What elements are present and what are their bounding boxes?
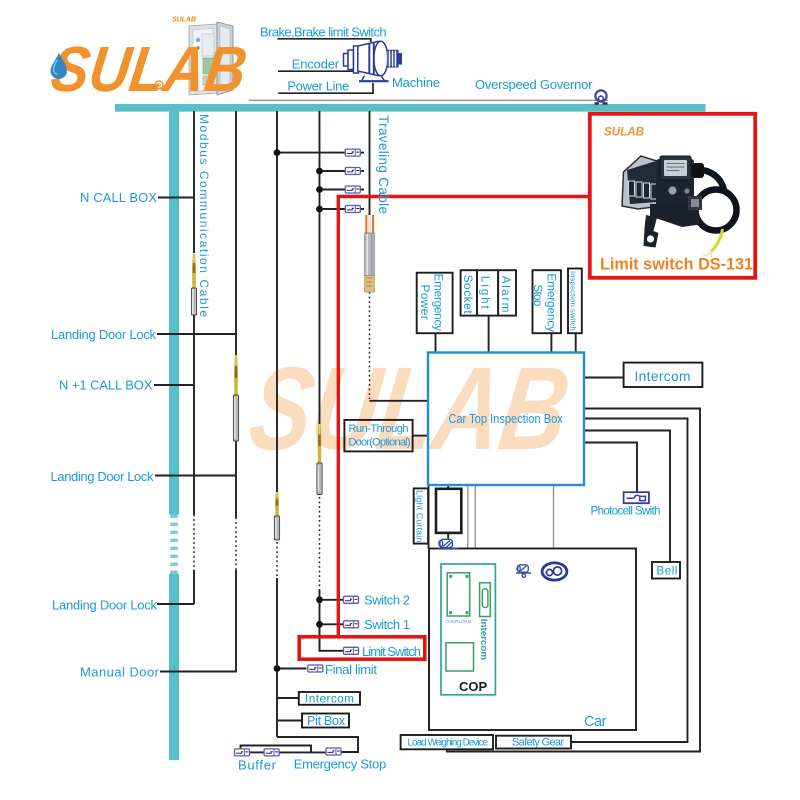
svg-text:Switch 1: Switch 1 xyxy=(364,617,410,632)
svg-text:Modbus Communication Cable: Modbus Communication Cable xyxy=(197,114,211,317)
svg-text:Buffer: Buffer xyxy=(238,758,277,773)
svg-text:Overspeed Governor: Overspeed Governor xyxy=(475,77,593,92)
svg-text:Intercom: Intercom xyxy=(478,619,489,660)
svg-text:Socket: Socket xyxy=(461,275,475,315)
svg-text:Pit Box: Pit Box xyxy=(307,714,346,728)
svg-text:Switch 2: Switch 2 xyxy=(364,593,410,608)
svg-text:Power: Power xyxy=(418,285,432,320)
svg-text:Intercom: Intercom xyxy=(635,369,691,384)
svg-text:Intercom: Intercom xyxy=(305,692,354,706)
svg-text:Alarm: Alarm xyxy=(499,276,513,313)
svg-text:Landing Door Lock: Landing Door Lock xyxy=(52,598,158,613)
svg-text:Limit switch DS-131: Limit switch DS-131 xyxy=(600,255,753,274)
svg-text:SULAB: SULAB xyxy=(604,125,644,139)
svg-text:Bell: Bell xyxy=(657,565,678,578)
svg-text:Machine: Machine xyxy=(392,75,440,90)
svg-text:Run-Through: Run-Through xyxy=(349,423,409,435)
svg-text:Emergency: Emergency xyxy=(545,273,559,332)
svg-text:Limit Switch: Limit Switch xyxy=(362,644,421,659)
svg-text:Landing Door Lock: Landing Door Lock xyxy=(51,469,155,484)
svg-text:Light Curtain: Light Curtain xyxy=(415,490,425,542)
svg-text:Brake,Brake limit Switch: Brake,Brake limit Switch xyxy=(260,25,387,40)
svg-text:Emergency Stop: Emergency Stop xyxy=(294,757,387,772)
svg-text:Car Top Inspection Box: Car Top Inspection Box xyxy=(448,411,563,426)
svg-text:SULAB: SULAB xyxy=(47,33,251,105)
svg-text:Final limit: Final limit xyxy=(325,662,377,677)
svg-text:OVERLOAD: OVERLOAD xyxy=(446,619,472,624)
svg-text:Photocell Swith: Photocell Swith xyxy=(591,505,661,518)
svg-text:N CALL BOX: N CALL BOX xyxy=(80,190,157,205)
svg-text:Inspection switch: Inspection switch xyxy=(569,271,578,331)
svg-text:Power Line: Power Line xyxy=(287,79,349,94)
svg-text:Stop: Stop xyxy=(531,284,545,306)
svg-text:Manual Door: Manual Door xyxy=(80,665,160,680)
svg-text:Emergency: Emergency xyxy=(432,274,446,332)
svg-text:R: R xyxy=(157,83,162,90)
svg-text:SULAB: SULAB xyxy=(242,344,576,475)
svg-text:Safety Gear: Safety Gear xyxy=(512,737,564,749)
svg-text:Car: Car xyxy=(584,714,607,730)
svg-text:Traveling Cable: Traveling Cable xyxy=(376,115,391,214)
svg-text:Landing Door Lock: Landing Door Lock xyxy=(51,327,157,342)
svg-text:Load Weighing Device: Load Weighing Device xyxy=(408,738,489,749)
svg-text:N +1 CALL BOX: N +1 CALL BOX xyxy=(59,378,153,393)
svg-text:SULAB: SULAB xyxy=(172,15,197,24)
svg-text:Door(Optional): Door(Optional) xyxy=(349,437,411,449)
svg-text:COP: COP xyxy=(459,679,488,694)
svg-text:Encoder: Encoder xyxy=(292,57,340,72)
